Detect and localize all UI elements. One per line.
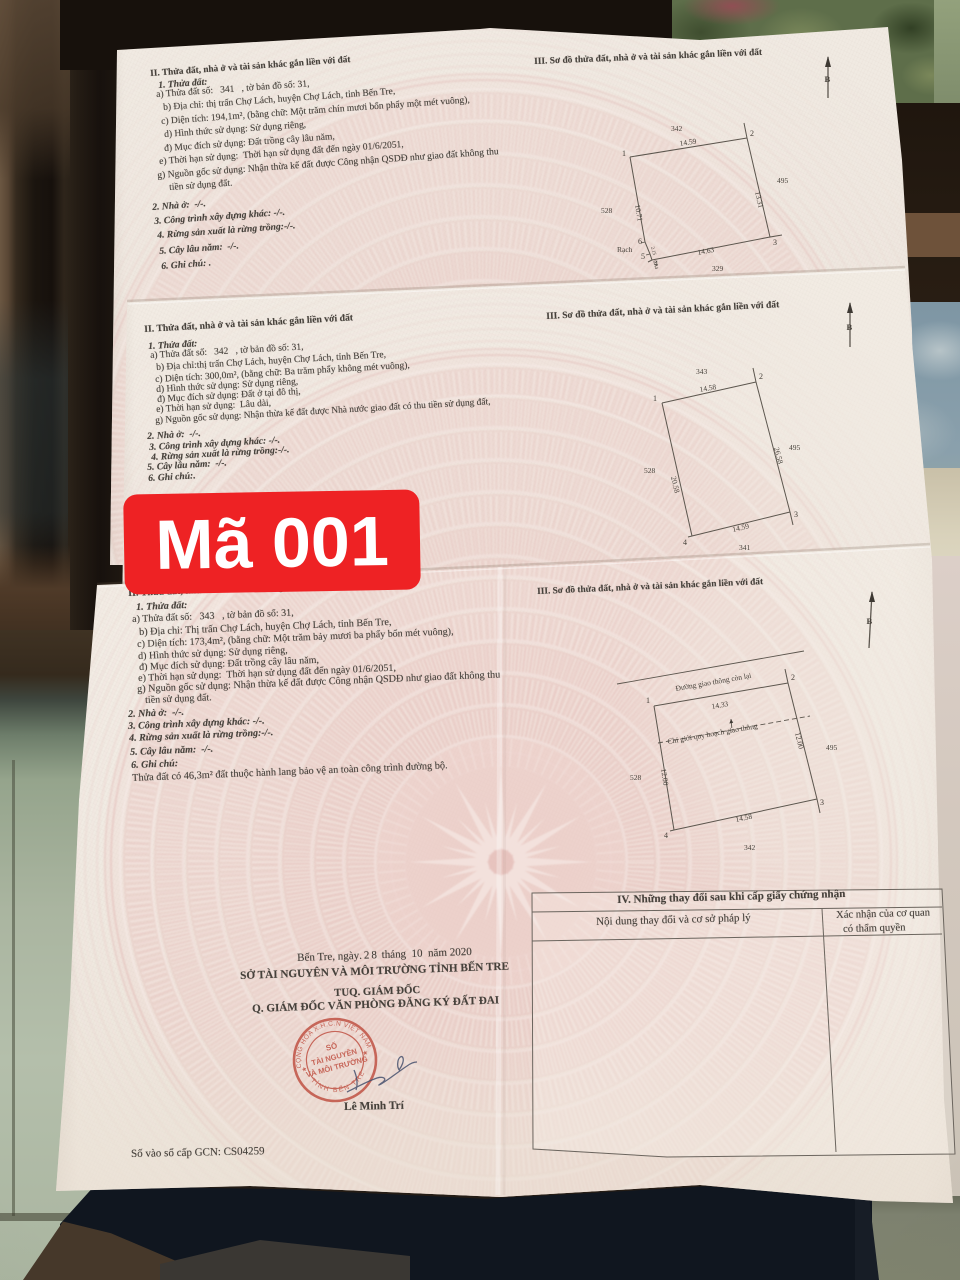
svg-text:★: ★ [361,1048,369,1057]
